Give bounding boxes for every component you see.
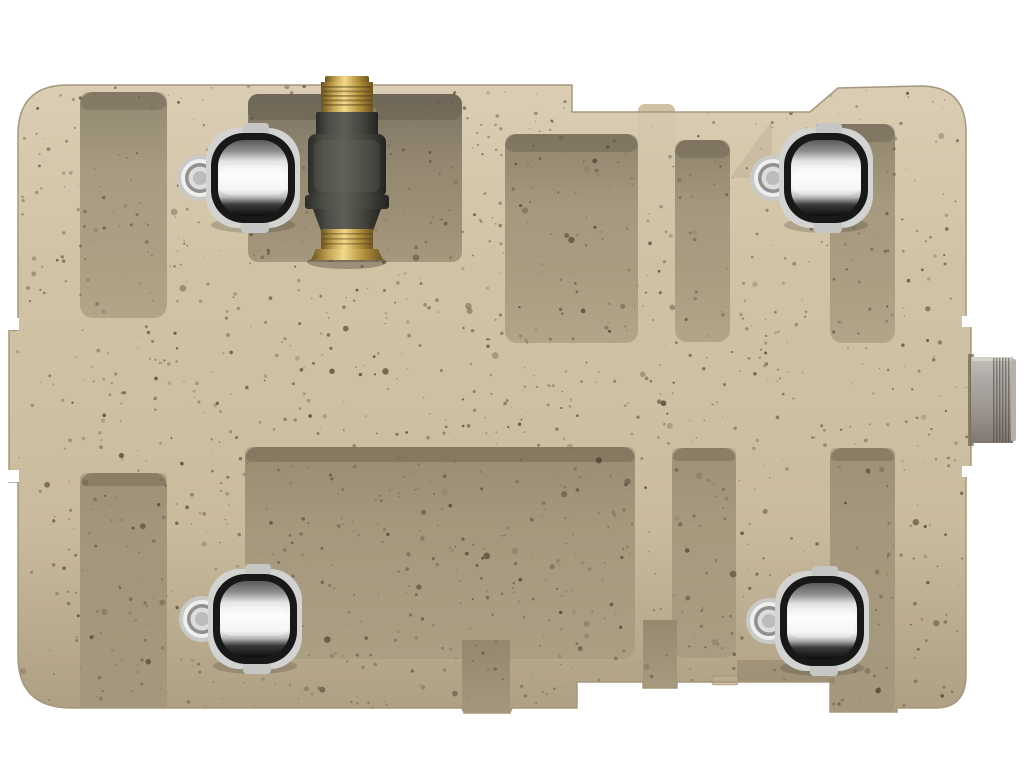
valve-body-sheen [314, 140, 380, 192]
valve-brass-lower [321, 229, 373, 251]
threaded-outlet-pipe [968, 354, 1016, 446]
render-canvas [0, 0, 1024, 768]
valve-flange [305, 195, 389, 209]
valve-brass-flare [311, 249, 383, 260]
pipe-body [971, 357, 1013, 443]
pipe-end-cap [1011, 359, 1016, 441]
valve-hex-taper [313, 209, 381, 231]
valve-hex-collar [316, 112, 378, 137]
